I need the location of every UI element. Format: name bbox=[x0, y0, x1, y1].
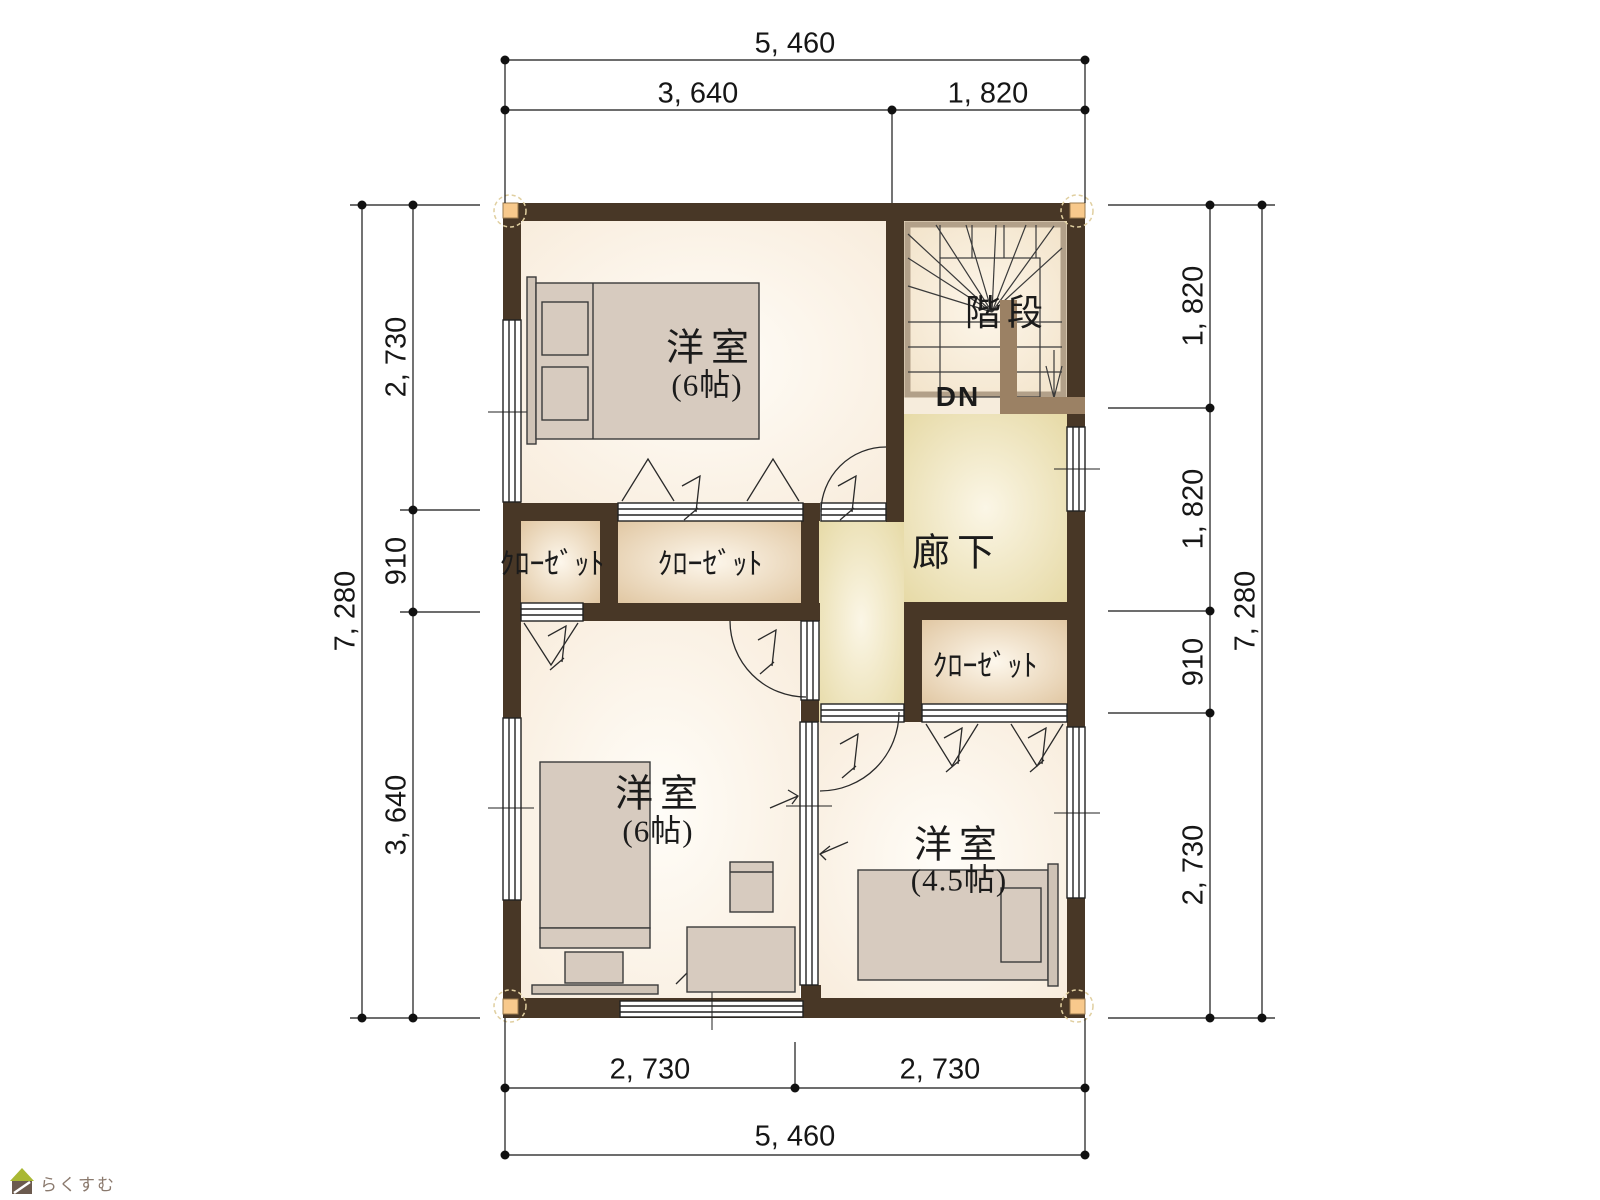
corner-marker-icon bbox=[503, 999, 518, 1014]
hallway-floor-strip bbox=[818, 521, 904, 722]
dim-top-segment-2: 1, 820 bbox=[948, 78, 1029, 111]
closet-left-label: ｸﾛｰｾﾞｯﾄ bbox=[500, 539, 605, 583]
house-logo-icon bbox=[10, 1168, 34, 1194]
door-bedroom-bottom-right bbox=[821, 704, 904, 722]
dim-right-segment-4: 2, 730 bbox=[1178, 825, 1211, 906]
logo-text: らくすむ bbox=[40, 1171, 116, 1196]
dim-left-segment-1: 2, 730 bbox=[381, 317, 414, 398]
dim-bottom-overall: 5, 460 bbox=[755, 1121, 836, 1154]
dim-left-segment-2: 910 bbox=[381, 537, 414, 585]
dim-bottom-segment-1: 2, 730 bbox=[610, 1054, 691, 1087]
wall-closet-right-top bbox=[904, 602, 1067, 620]
hallway-label: 廊下 bbox=[912, 522, 1002, 577]
stairs-dn-label: DN bbox=[936, 381, 980, 413]
bedroom-bottom-left-size: (6帖) bbox=[622, 806, 693, 851]
dim-right-segment-2: 1, 820 bbox=[1178, 469, 1211, 550]
dim-top-overall: 5, 460 bbox=[755, 28, 836, 61]
wall-partition-foot bbox=[801, 985, 821, 1000]
wall-closet-right-west bbox=[904, 602, 922, 722]
dim-right-segment-1: 1, 820 bbox=[1178, 266, 1211, 347]
wall-closet-east bbox=[801, 503, 819, 621]
dim-right-segment-3: 910 bbox=[1178, 638, 1211, 686]
corner-marker-icon bbox=[1070, 203, 1085, 218]
floorplan-drawing bbox=[0, 0, 1600, 1200]
desk bbox=[687, 927, 795, 992]
door-bedroom-bottom-left-slide bbox=[801, 621, 819, 700]
dim-left-segment-3: 3, 640 bbox=[381, 775, 414, 856]
door-closet-left bbox=[521, 603, 583, 621]
corner-marker-icon bbox=[503, 203, 518, 218]
dim-left-overall: 7, 280 bbox=[330, 571, 363, 652]
bedroom-top-size: (6帖) bbox=[671, 360, 742, 405]
chair bbox=[730, 862, 773, 912]
dim-top-segment-1: 3, 640 bbox=[658, 78, 739, 111]
door-closet-middle-bifold bbox=[618, 503, 803, 521]
wall-stairs-west bbox=[886, 221, 904, 522]
bedroom-bottom-right-size: (4.5帖) bbox=[911, 855, 1007, 900]
closet-middle-label: ｸﾛｰｾﾞｯﾄ bbox=[658, 539, 763, 583]
door-bedroom-top bbox=[821, 503, 886, 521]
corner-marker-icon bbox=[1070, 999, 1085, 1014]
dim-right-overall: 7, 280 bbox=[1230, 571, 1263, 652]
stairs-label: 階段 bbox=[965, 284, 1049, 336]
wall-top bbox=[503, 203, 1085, 221]
door-closet-right-bifold bbox=[922, 704, 1067, 722]
wall-partition-stub bbox=[801, 700, 819, 722]
closet-right-label: ｸﾛｰｾﾞｯﾄ bbox=[933, 641, 1038, 685]
dim-bottom-segment-2: 2, 730 bbox=[900, 1054, 981, 1087]
floorplan-page: 洋室 (6帖) 階段 DN 廊下 ｸﾛｰｾﾞｯﾄ ｸﾛｰｾﾞｯﾄ ｸﾛｰｾﾞｯﾄ… bbox=[0, 0, 1600, 1200]
